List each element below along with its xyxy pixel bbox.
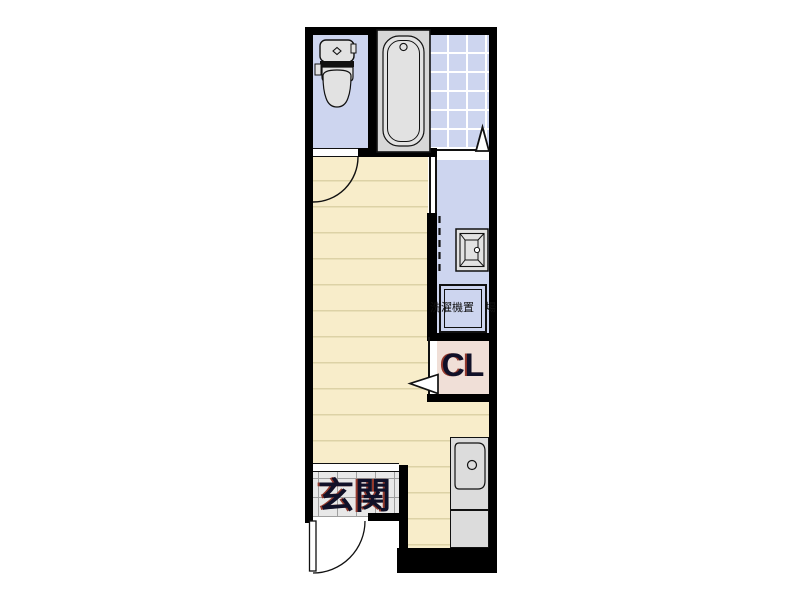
wall-toilet-bath-divider <box>368 27 377 157</box>
entrance-door-icon <box>310 521 366 573</box>
washroom-opening <box>429 157 437 213</box>
main-room-floor <box>313 157 428 465</box>
entrance-step-edge <box>313 463 399 472</box>
wall-under-closet <box>427 394 489 402</box>
closet-label: CL <box>437 349 489 387</box>
kitchen-counter <box>450 437 489 548</box>
toilet-room-floor <box>313 35 368 148</box>
wall-under-washer <box>427 333 489 341</box>
bathroom-door-threshold <box>437 151 489 160</box>
toilet-door-threshold <box>313 148 358 157</box>
wall-top <box>305 27 497 35</box>
kitchen-counter-divider <box>450 509 489 511</box>
closet-track-edge <box>428 337 430 394</box>
floor-plan-canvas: 洗濯機置 場 玄関 CL <box>0 0 800 600</box>
wall-washroom-left <box>427 213 437 337</box>
washer-label-line1: 洗濯機 <box>430 302 463 315</box>
bathroom-tile-floor <box>430 35 489 149</box>
wall-right <box>489 27 497 573</box>
bathtub-icon <box>377 30 430 152</box>
main-room-floor-right <box>428 402 489 437</box>
main-room-floor-bottom <box>408 437 450 548</box>
washing-machine-label: 洗濯機置 場 <box>444 289 482 328</box>
entrance-label: 玄関 <box>309 477 401 517</box>
washing-machine-space: 洗濯機置 場 <box>439 284 487 333</box>
washer-label-line2: 置 場 <box>463 302 496 315</box>
wall-bottom <box>397 548 497 573</box>
wall-under-bath <box>358 148 437 157</box>
wall-left <box>305 27 313 523</box>
